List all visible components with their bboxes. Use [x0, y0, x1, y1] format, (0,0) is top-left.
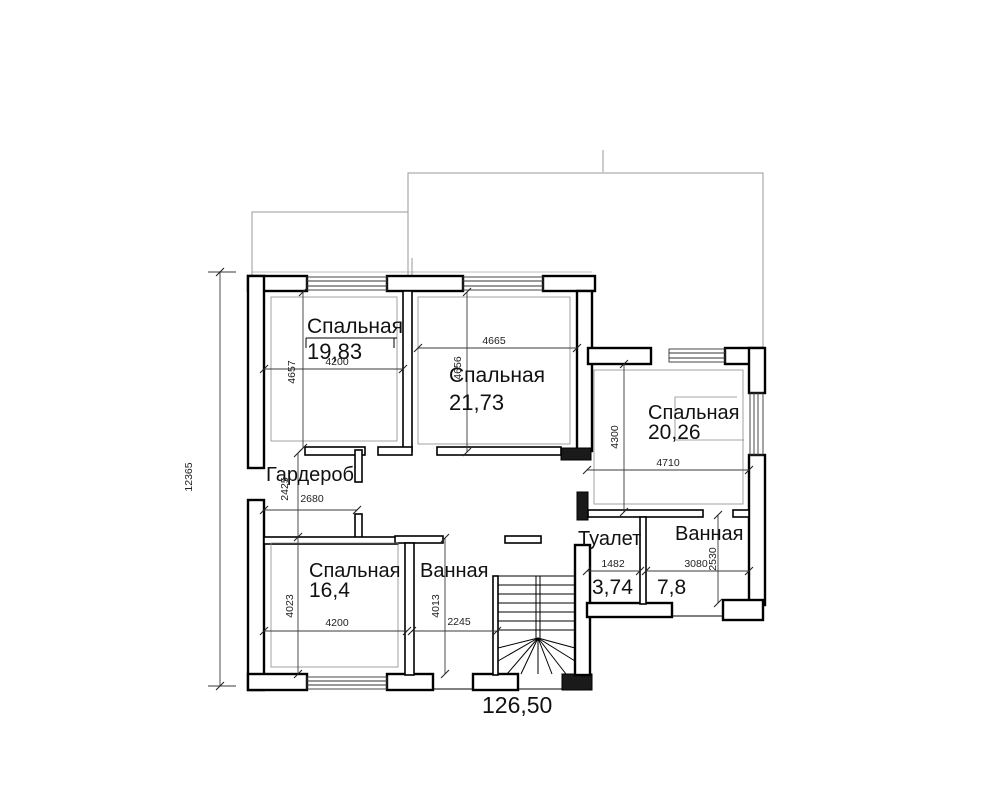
room-area-bedroom3: 20,26 — [648, 421, 701, 444]
dim-bedroom2-width: 4665 — [482, 335, 506, 347]
room-area-bathroom-right: 7,8 — [657, 576, 686, 599]
floor-plan-drawing: Спальная 19,83 Спальная 21,73 Спальная 2… — [0, 0, 1000, 800]
dim-bathroom-right-height: 2530 — [707, 547, 719, 571]
dim-overall-height: 12365 — [183, 462, 195, 491]
staircase — [498, 576, 575, 689]
dim-bedroom2-height: 4656 — [452, 356, 464, 380]
room-label-bedroom1: Спальная — [307, 315, 403, 338]
room-label-toilet: Туалет — [578, 528, 641, 550]
dim-bathroom-left-height: 4013 — [430, 594, 442, 618]
dim-bedroom1-width: 4200 — [325, 356, 349, 368]
floor-plan-canvas: Спальная 19,83 Спальная 21,73 Спальная 2… — [0, 0, 1000, 800]
room-label-bathroom-right: Ванная — [675, 523, 744, 545]
dim-bedroom3-height: 4300 — [609, 425, 621, 449]
dim-bedroom4-width: 4200 — [325, 617, 349, 629]
windows — [307, 277, 763, 689]
dim-bedroom3-width: 4710 — [656, 457, 680, 469]
dim-bedroom1-height: 4657 — [286, 360, 298, 384]
dim-bedroom4-height: 4023 — [284, 594, 296, 618]
room-area-bedroom4: 16,4 — [309, 579, 350, 602]
room-label-bathroom-left: Ванная — [420, 560, 489, 582]
dim-toilet-width: 1482 — [601, 558, 625, 570]
dim-wardrobe-height: 2425 — [279, 477, 291, 501]
total-area-label: 126,50 — [482, 692, 552, 718]
dim-bathroom-left-width: 2245 — [447, 616, 471, 628]
room-area-bedroom2: 21,73 — [449, 390, 504, 415]
room-area-toilet: 3,74 — [592, 576, 633, 599]
dim-wardrobe-width: 2680 — [300, 493, 324, 505]
dim-bathroom-right-width: 3080 — [684, 558, 708, 570]
